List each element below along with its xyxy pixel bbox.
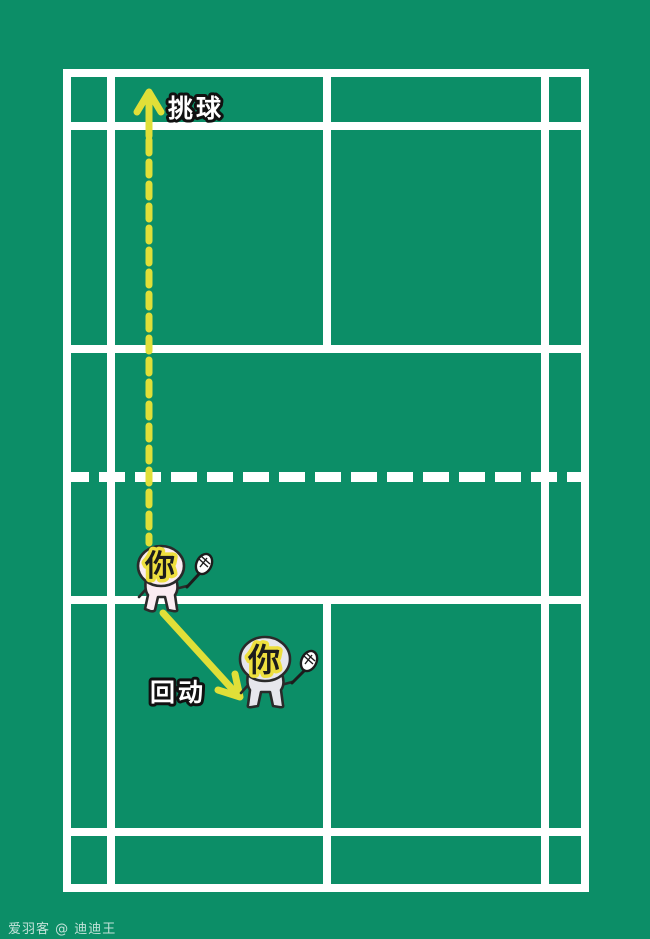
court-svg: 挑球 回动 你 xyxy=(0,0,650,939)
badminton-tactic-diagram: 挑球 回动 你 xyxy=(0,0,650,939)
lob-label: 挑球 xyxy=(168,94,224,123)
player-upper-char: 你 xyxy=(144,549,175,584)
player-lower-char: 你 xyxy=(247,641,280,679)
recover-label: 回动 xyxy=(150,678,206,707)
watermark: 爱羽客 @ 迪迪王 xyxy=(8,918,116,937)
